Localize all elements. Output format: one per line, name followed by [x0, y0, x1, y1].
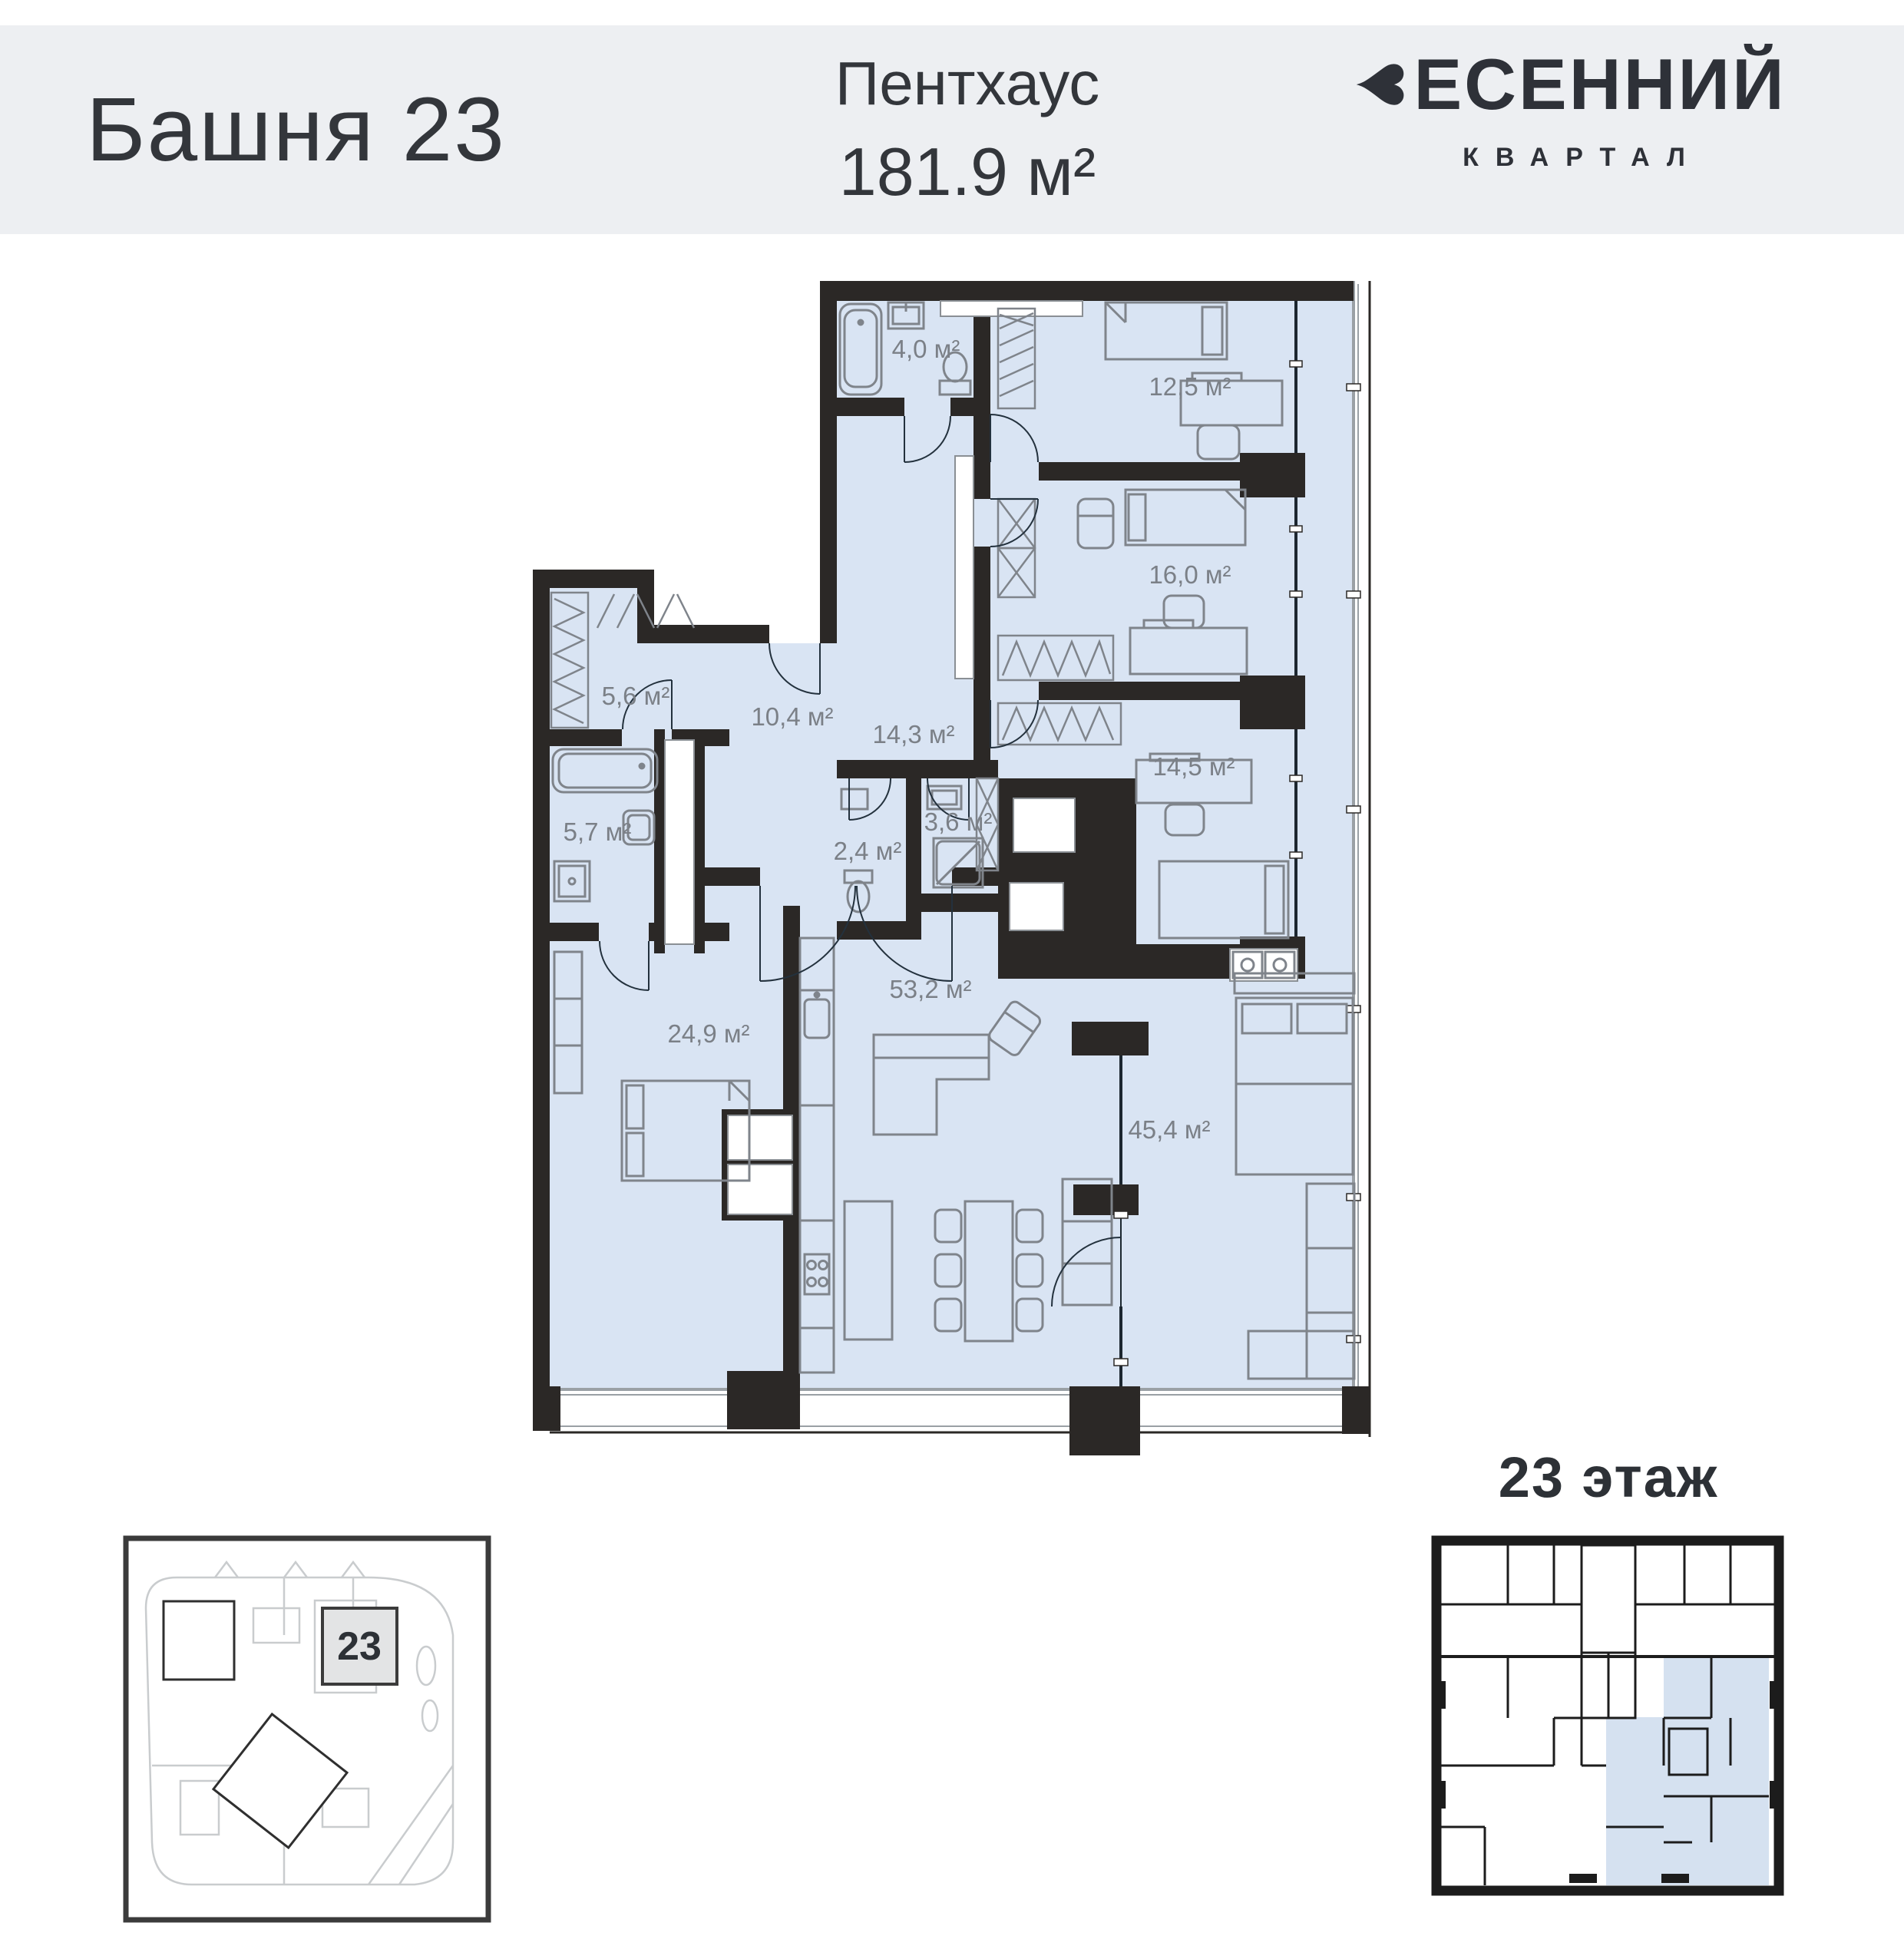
- site-plan-map: 23: [123, 1535, 491, 1923]
- unit-area-value: 181.9 м²: [676, 133, 1259, 211]
- room-area-label: 14,5 м²: [1152, 752, 1235, 781]
- tower-title: Башня 23: [86, 25, 506, 234]
- room-area-label: 3,6 м²: [924, 808, 993, 836]
- room-area-label: 45,4 м²: [1128, 1115, 1210, 1144]
- unit-type-label: Пентхаус: [676, 48, 1259, 119]
- room-area-label: 12,5 м²: [1149, 372, 1231, 401]
- room-area-label: 5,7 м²: [564, 818, 632, 846]
- floor-plate-minimap: [1431, 1535, 1784, 1896]
- brand-logo: ♥ ЕСЕННИЙ КВАРТАЛ: [1336, 46, 1812, 173]
- flyer-page: Башня 23 Пентхаус 181.9 м² ♥ ЕСЕННИЙ КВА…: [0, 0, 1904, 1949]
- heart-icon: ♥: [1347, 60, 1424, 109]
- room-area-label: 2,4 м²: [834, 837, 902, 865]
- brand-subtitle: КВАРТАЛ: [1336, 143, 1812, 173]
- room-area-label: 24,9 м²: [667, 1019, 749, 1048]
- room-area-label: 5,6 м²: [602, 682, 670, 710]
- room-area-label: 4,0 м²: [892, 335, 960, 363]
- brand-word-text: ЕСЕННИЙ: [1413, 46, 1786, 123]
- room-area-label: 14,3 м²: [872, 720, 954, 748]
- brand-wordmark: ♥ ЕСЕННИЙ: [1336, 46, 1812, 123]
- room-area-label: 16,0 м²: [1149, 560, 1231, 589]
- room-area-label: 53,2 м²: [889, 975, 971, 1003]
- site-tower-number: 23: [337, 1624, 382, 1669]
- room-area-label: 10,4 м²: [751, 702, 833, 731]
- site-tower-marker: 23: [322, 1608, 397, 1684]
- unit-summary: Пентхаус 181.9 м²: [676, 25, 1259, 234]
- floor-number-title: 23 этаж: [1397, 1445, 1820, 1510]
- apartment-floor-plan: 4,0 м² 12,5 м² 16,0 м² 14,5 м² 5,6 м² 10…: [507, 269, 1397, 1466]
